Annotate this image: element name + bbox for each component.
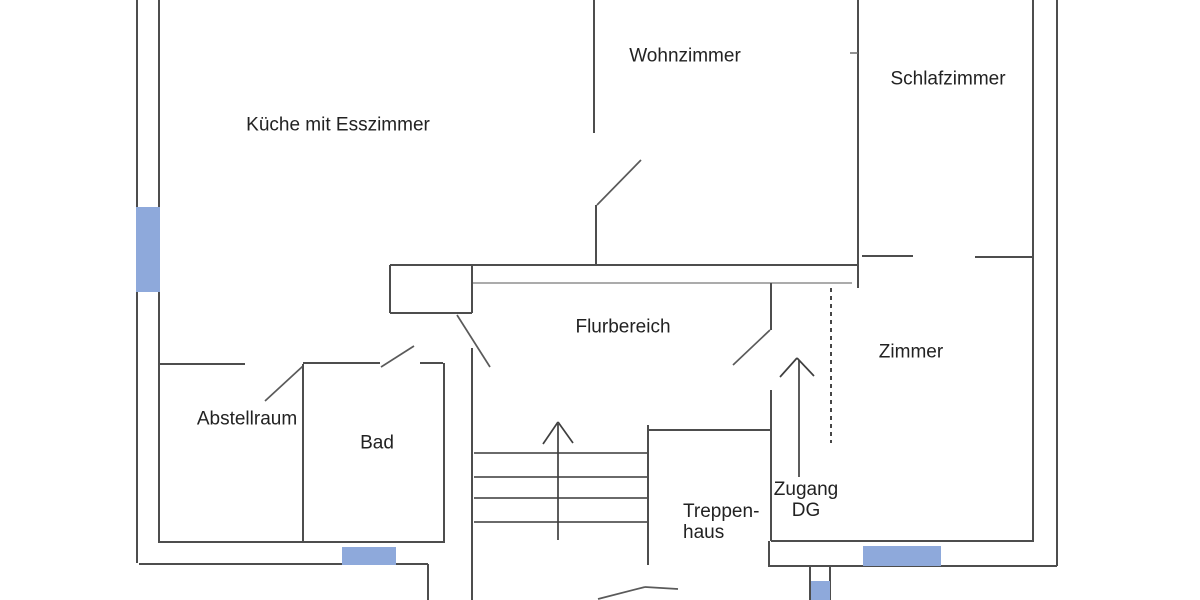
door-swing-kueche-flur — [457, 315, 490, 367]
floorplan: Küche mit EsszimmerWohnzimmerSchlafzimme… — [0, 0, 1200, 600]
stairs-up-arrow-head-right — [558, 422, 573, 443]
room-label-treppenhaus: Treppen- haus — [683, 501, 759, 543]
door-swing-abstellraum — [265, 366, 303, 401]
door-swing-entry-cutoff-a — [598, 587, 645, 599]
window-marker-left — [136, 207, 160, 292]
zugang-dg-arrow-head-left — [780, 358, 797, 377]
room-label-kueche: Küche mit Esszimmer — [246, 115, 430, 136]
door-swing-flur-treppenhaus — [733, 330, 770, 365]
room-label-flurbereich: Flurbereich — [575, 317, 670, 338]
room-label-wohnzimmer: Wohnzimmer — [629, 46, 741, 67]
floorplan-canvas — [0, 0, 1200, 600]
room-label-bad: Bad — [360, 433, 394, 454]
window-marker-bottom-zimmer — [863, 546, 941, 566]
window-marker-bottom-bad — [342, 547, 396, 565]
door-swing-bad — [381, 346, 414, 367]
room-label-zugang-dg: Zugang DG — [774, 479, 838, 521]
door-swing-wohnzimmer — [597, 160, 641, 205]
room-label-abstellraum: Abstellraum — [197, 409, 297, 430]
room-label-zimmer: Zimmer — [879, 342, 943, 363]
stairs-up-arrow-head-left — [543, 422, 558, 444]
window-marker-chimney — [811, 581, 830, 600]
door-swing-entry-cutoff-b — [645, 587, 678, 589]
room-label-schlafzimmer: Schlafzimmer — [890, 69, 1005, 90]
